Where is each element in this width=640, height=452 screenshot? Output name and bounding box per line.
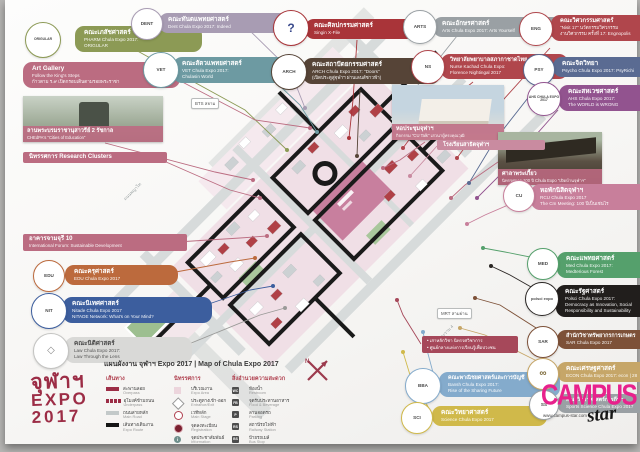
legend-facilities-column: สิ่งอำนวยความสะดวก WC ห้องน้ำRestroom FB…: [232, 375, 289, 447]
parking-icon: P: [232, 411, 246, 418]
bus-stop-icon: BS: [232, 436, 246, 443]
compass-north-icon: N: [303, 356, 333, 386]
legend-expo-column: นิทรรศการ บริเวณงานExpo Area ประตูทางเข้…: [174, 375, 226, 447]
mrt-station-marker: MRT สามย่าน: [437, 308, 472, 319]
railway-station-icon: RS: [232, 423, 246, 430]
bts-station-marker: BTS สยาม: [191, 98, 219, 109]
edu-flame-logo-badge: EDU: [33, 260, 65, 292]
legend-row: FB จุดรับประทานอาหารFood & Beverage: [232, 398, 289, 408]
expo-area-swatch: [174, 387, 188, 394]
statue-silhouette: [79, 102, 109, 128]
science-logo-badge: SCI: [401, 402, 433, 434]
chula-expo-map-poster: BTS สยาม MRT สามย่าน ถนนพญาไท ถนนอังรีดู…: [5, 0, 637, 444]
sar-logo-badge: SAR: [527, 326, 559, 358]
arch-door-logo-badge: ARCH: [271, 54, 307, 90]
overpass-swatch: [106, 387, 120, 391]
med-logo-badge: MED: [527, 248, 559, 280]
nurse-logo-badge: NS: [411, 50, 445, 84]
legend-row: ประตูทางเข้า-ออกEntrance/Exit: [174, 398, 226, 408]
legend-routes-column: เส้นทาง สะพานลอยOverpass อุโมงค์ข้ามถนนU…: [106, 375, 154, 435]
registration-icon: [174, 424, 188, 433]
bar-satit-school: โรงเรียนสาธิตจุฬาฯ: [437, 140, 545, 150]
svg-text:N: N: [305, 359, 309, 365]
commerce-logo-badge: BBA: [405, 368, 441, 404]
main-stage-icon: [174, 411, 188, 420]
chula-expo-2017-wordmark: จุฬาฯ EXPO 2017: [30, 371, 89, 426]
photo-auditorium: หอประชุมจุฬาฯกิจกรรม "CU Talk" เสวนาผู้ท…: [392, 85, 504, 140]
psych-whale-logo-badge: PSY: [523, 54, 555, 86]
expo-route-swatch: [106, 423, 120, 427]
legend-row: จุดลงทะเบียนRegistration: [174, 423, 226, 433]
main-road-swatch: [106, 411, 120, 415]
photo-caption: ลานพระบรมราชานุสาวรีย์ 2 รัชกาล: [27, 128, 159, 135]
legend-row: อุโมงค์ข้ามถนนUnderpass: [106, 398, 154, 408]
eng-gear-logo-badge: ENG: [519, 12, 553, 46]
arts-lightbulb-logo-badge: ARTS: [403, 10, 437, 44]
ahs-logo-badge: AHS CHULA EXPO 2017: [527, 82, 561, 116]
pharm-logo-badge: ORIGULAR: [25, 22, 61, 58]
info-box-pillars: • เสาหลักวิชา นิทรรศวิชาการ • ศูนย์กลางแ…: [422, 336, 518, 353]
food-beverage-icon: FB: [232, 399, 246, 406]
law-diamond-logo-badge: ◇: [33, 333, 69, 369]
polsci-expo-logo-badge: polsci expo: [525, 282, 559, 316]
legend-row: P ลานจอดรถParking: [232, 410, 289, 420]
campus-star-logo: CAMPUS star www.campus-star.com: [541, 384, 640, 444]
finearts-question-logo-badge: ?: [273, 10, 309, 46]
legend-row: เส้นทางเดินงานExpo Route: [106, 422, 154, 432]
legend-row: บริเวณงานExpo Area: [174, 386, 226, 396]
legend-row: สะพานลอยOverpass: [106, 386, 154, 396]
photo-two-kings-monument: ลานพระบรมราชานุสาวรีย์ 2 รัชกาลCHEdPA's …: [23, 96, 163, 142]
legend-row: เวทีหลักMain Stage: [174, 410, 226, 420]
legend-row: WC ห้องน้ำRestroom: [232, 386, 289, 396]
legend-row: BS ป้ายรถเมล์Bus Stop: [232, 435, 289, 445]
rcu-logo-badge: CU: [503, 180, 535, 212]
photo-of-poster: BTS สยาม MRT สามย่าน ถนนพญาไท ถนนอังรีดู…: [0, 0, 640, 452]
nitade-phone-logo-badge: NIT: [31, 293, 67, 329]
restroom-icon: WC: [232, 387, 246, 394]
bar-research-clusters: นิทรรศการ Research Clusters: [23, 152, 167, 163]
entrance-diamond-icon: [174, 399, 188, 408]
bar-chamchuri-10: อาคารจามจุรี 10 International Forum: Sus…: [23, 234, 187, 251]
legend-row: RS สถานีรถไฟฟ้าRailway Station: [232, 422, 289, 432]
vet-logo-badge: VET: [143, 52, 179, 88]
underpass-swatch: [106, 399, 121, 403]
campus-star-script: star: [586, 402, 618, 427]
legend-row: i จุดประชาสัมพันธ์Information: [174, 435, 226, 445]
information-icon: i: [174, 436, 188, 443]
campus-star-url: www.campus-star.com: [543, 413, 587, 418]
legend-row: ถนนสายหลักMain Road: [106, 410, 154, 420]
auditorium-building: [418, 99, 492, 125]
dent-logo-badge: DENT: [131, 8, 163, 40]
